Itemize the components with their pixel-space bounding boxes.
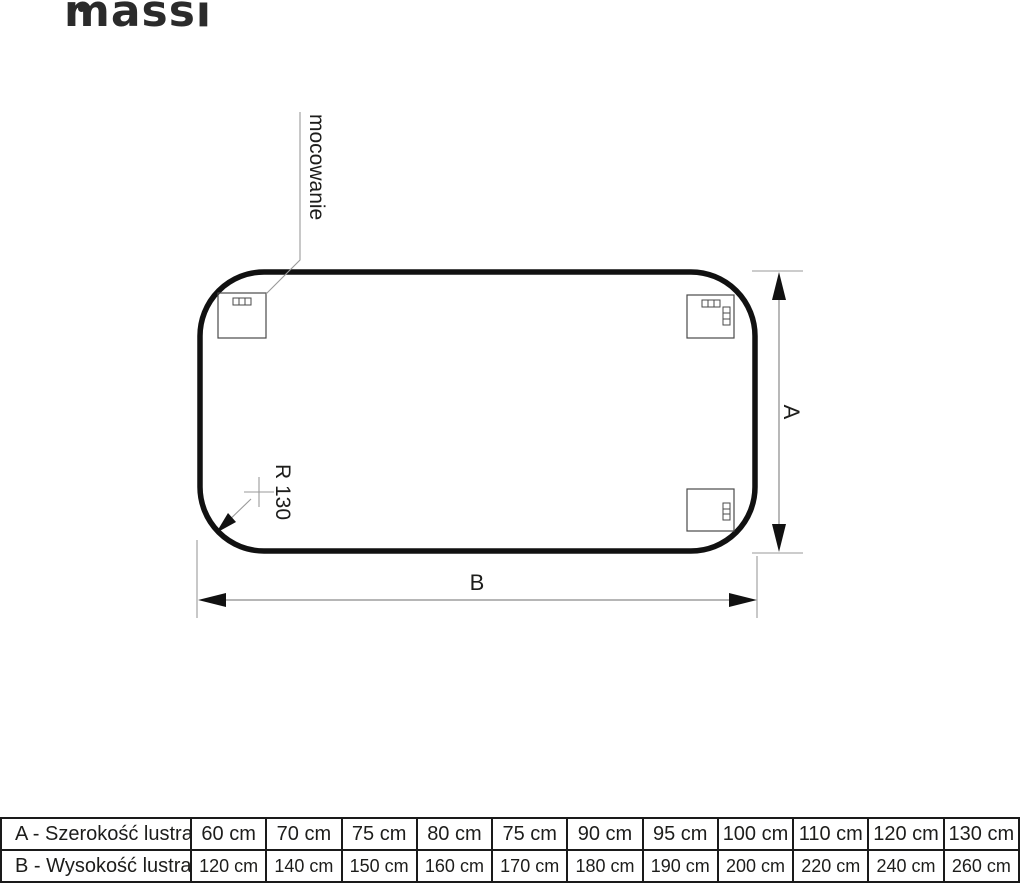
table-cell: 260 cm xyxy=(944,850,1019,882)
table-cell: 100 cm xyxy=(718,818,793,850)
table-cell: 170 cm xyxy=(492,850,567,882)
table-cell: 120 cm xyxy=(191,850,266,882)
table-cell: 190 cm xyxy=(643,850,718,882)
table-cell: 75 cm xyxy=(492,818,567,850)
radius-label: R 130 xyxy=(271,464,294,520)
table-cell: 70 cm xyxy=(266,818,341,850)
table-cell: 80 cm xyxy=(417,818,492,850)
table-cell: 110 cm xyxy=(793,818,868,850)
mounting-bracket-bottom-right xyxy=(687,489,734,531)
row-label: B - Wysokość lustra xyxy=(1,850,191,882)
mounting-bracket-top-left xyxy=(218,293,266,338)
dim-a-label: A xyxy=(779,405,804,420)
table-cell: 240 cm xyxy=(868,850,943,882)
dim-b-label: B xyxy=(470,570,485,595)
table-cell: 130 cm xyxy=(944,818,1019,850)
mirror-technical-drawing: mocowanie R 130 A B xyxy=(0,0,1020,700)
table-cell: 150 cm xyxy=(342,850,417,882)
row-label: A - Szerokość lustra xyxy=(1,818,191,850)
table-cell: 90 cm xyxy=(567,818,642,850)
arrow-right-icon xyxy=(729,593,757,607)
table-cell: 140 cm xyxy=(266,850,341,882)
arrow-up-icon xyxy=(772,272,786,300)
arrow-left-icon xyxy=(198,593,226,607)
mirror-spec-page: massi mocow xyxy=(0,0,1020,883)
table-cell: 200 cm xyxy=(718,850,793,882)
table-cell: 220 cm xyxy=(793,850,868,882)
table-cell: 180 cm xyxy=(567,850,642,882)
table-row-width: A - Szerokość lustra 60 cm 70 cm 75 cm 8… xyxy=(1,818,1019,850)
dimension-a: A xyxy=(752,271,804,553)
table-cell: 160 cm xyxy=(417,850,492,882)
radius-annotation: R 130 xyxy=(216,464,294,533)
arrow-down-icon xyxy=(772,524,786,552)
table-cell: 120 cm xyxy=(868,818,943,850)
mounting-bracket-top-right xyxy=(687,295,734,338)
table-cell: 95 cm xyxy=(643,818,718,850)
table-cell: 60 cm xyxy=(191,818,266,850)
dimensions-table: A - Szerokość lustra 60 cm 70 cm 75 cm 8… xyxy=(0,817,1020,883)
table-cell: 75 cm xyxy=(342,818,417,850)
mounting-leader-line xyxy=(266,112,300,294)
mounting-label: mocowanie xyxy=(305,114,328,220)
table-row-height: B - Wysokość lustra 120 cm 140 cm 150 cm… xyxy=(1,850,1019,882)
